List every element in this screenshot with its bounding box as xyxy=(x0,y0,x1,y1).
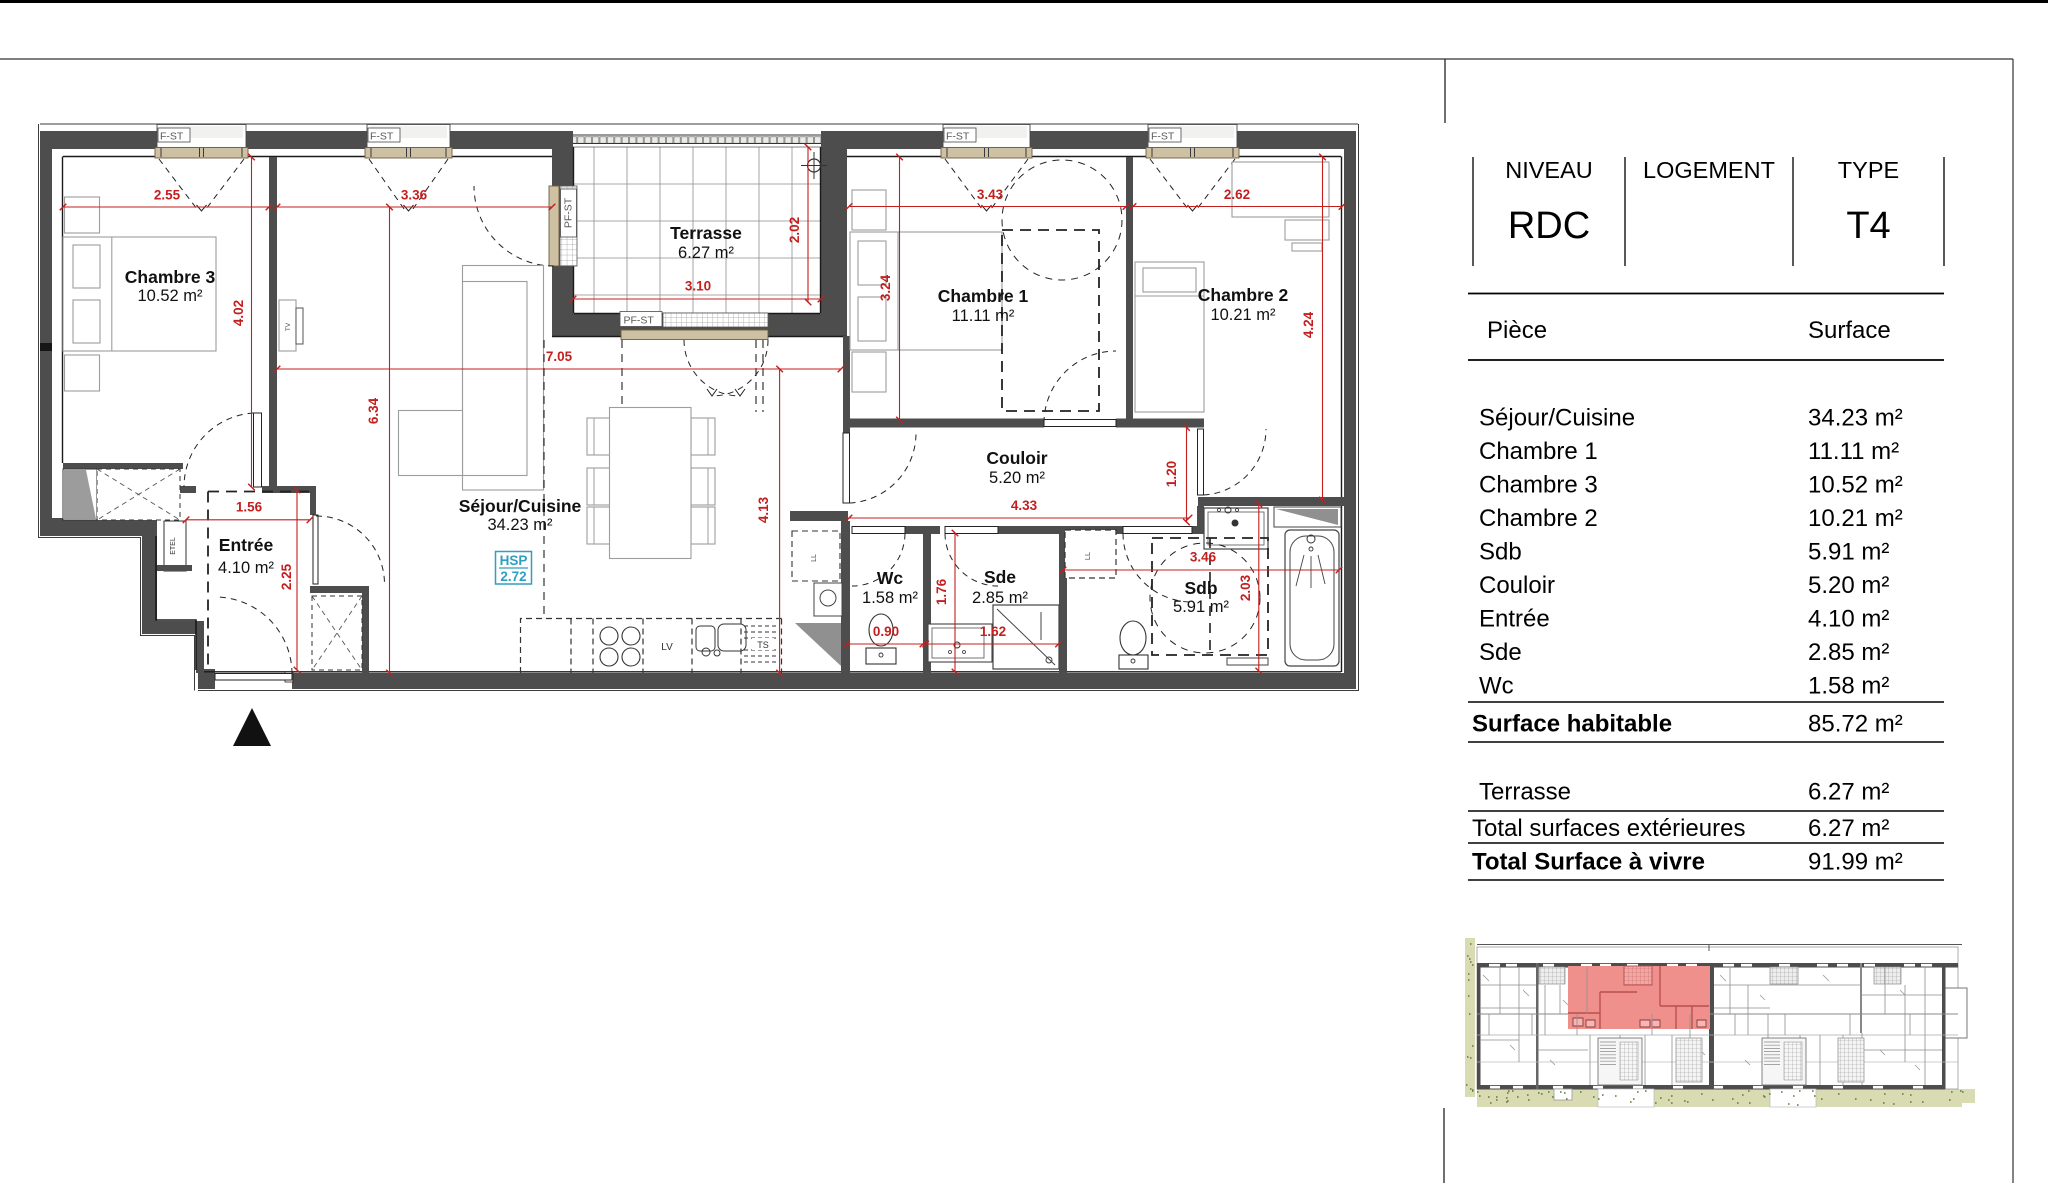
svg-text:10.21 m²: 10.21 m² xyxy=(1808,505,1903,532)
svg-text:Surface habitable: Surface habitable xyxy=(1472,711,1672,738)
svg-text:F-ST: F-ST xyxy=(946,131,970,143)
svg-text:PF-ST: PF-ST xyxy=(563,197,575,228)
svg-text:1.58 m²: 1.58 m² xyxy=(1808,673,1889,700)
svg-text:Sdb: Sdb xyxy=(1479,539,1522,566)
svg-text:Terrasse: Terrasse xyxy=(1479,779,1571,806)
svg-text:1.20: 1.20 xyxy=(1164,461,1179,487)
svg-text:Couloir: Couloir xyxy=(986,448,1047,468)
svg-text:Total surfaces extérieures: Total surfaces extérieures xyxy=(1472,815,1745,842)
svg-text:F-ST: F-ST xyxy=(1151,131,1175,143)
svg-text:3.46: 3.46 xyxy=(1190,550,1217,565)
svg-text:4.10 m²: 4.10 m² xyxy=(218,559,274,577)
svg-text:Chambre 2: Chambre 2 xyxy=(1198,285,1289,305)
svg-text:6.34: 6.34 xyxy=(366,397,381,424)
svg-text:LOGEMENT: LOGEMENT xyxy=(1643,157,1775,183)
svg-text:11.11 m²: 11.11 m² xyxy=(1808,438,1899,465)
svg-text:6.27 m²: 6.27 m² xyxy=(1808,815,1889,842)
svg-text:Sde: Sde xyxy=(1479,639,1522,666)
svg-text:T4: T4 xyxy=(1846,205,1890,247)
svg-text:NIVEAU: NIVEAU xyxy=(1505,157,1593,183)
svg-text:RDC: RDC xyxy=(1508,205,1590,247)
svg-text:F-ST: F-ST xyxy=(370,131,394,143)
svg-text:4.02: 4.02 xyxy=(231,300,246,326)
svg-text:HSP: HSP xyxy=(500,553,528,568)
svg-text:4.13: 4.13 xyxy=(756,496,771,523)
svg-text:2.02: 2.02 xyxy=(787,217,802,243)
svg-text:1.56: 1.56 xyxy=(236,500,263,515)
svg-text:Entrée: Entrée xyxy=(219,535,274,555)
svg-text:Chambre 2: Chambre 2 xyxy=(1479,505,1598,532)
svg-text:7.05: 7.05 xyxy=(546,349,573,364)
svg-text:TV: TV xyxy=(285,322,292,331)
svg-text:3.36: 3.36 xyxy=(401,188,428,203)
svg-text:5.20 m²: 5.20 m² xyxy=(989,469,1045,487)
svg-text:Séjour/Cuisine: Séjour/Cuisine xyxy=(1479,405,1635,432)
svg-text:F-ST: F-ST xyxy=(160,131,184,143)
svg-text:Wc: Wc xyxy=(1479,673,1514,700)
svg-text:2.85 m²: 2.85 m² xyxy=(972,589,1028,607)
svg-text:LL: LL xyxy=(1083,552,1092,560)
svg-text:Total Surface à vivre: Total Surface à vivre xyxy=(1472,849,1705,876)
svg-text:1.62: 1.62 xyxy=(980,624,1006,639)
svg-text:2.25: 2.25 xyxy=(279,563,294,590)
svg-text:91.99 m²: 91.99 m² xyxy=(1808,849,1903,876)
svg-text:Chambre 1: Chambre 1 xyxy=(1479,438,1598,465)
svg-text:3.24: 3.24 xyxy=(878,274,893,301)
svg-text:34.23 m²: 34.23 m² xyxy=(487,516,553,534)
svg-text:Surface: Surface xyxy=(1808,317,1891,344)
svg-text:4.24: 4.24 xyxy=(1301,311,1316,338)
svg-text:0.90: 0.90 xyxy=(873,624,899,639)
svg-text:LL: LL xyxy=(811,554,818,562)
svg-text:10.52 m²: 10.52 m² xyxy=(1808,472,1903,499)
svg-text:2.85 m²: 2.85 m² xyxy=(1808,639,1889,666)
svg-text:1.76: 1.76 xyxy=(934,578,949,605)
svg-text:6.27 m²: 6.27 m² xyxy=(678,244,734,262)
svg-text:Terrasse: Terrasse xyxy=(670,223,742,243)
svg-text:Pièce: Pièce xyxy=(1487,317,1547,344)
svg-text:6.27 m²: 6.27 m² xyxy=(1808,779,1889,806)
svg-text:3.43: 3.43 xyxy=(977,187,1004,202)
svg-text:ETEL: ETEL xyxy=(170,537,177,555)
svg-text:4.33: 4.33 xyxy=(1011,498,1038,513)
svg-text:2.62: 2.62 xyxy=(1224,187,1250,202)
svg-text:2.72: 2.72 xyxy=(500,569,526,584)
svg-text:5.91 m²: 5.91 m² xyxy=(1173,598,1229,616)
svg-text:Couloir: Couloir xyxy=(1479,572,1555,599)
svg-text:34.23 m²: 34.23 m² xyxy=(1808,405,1903,432)
svg-text:Chambre 1: Chambre 1 xyxy=(938,286,1029,306)
svg-text:4.10 m²: 4.10 m² xyxy=(1808,606,1889,633)
svg-text:Sde: Sde xyxy=(984,567,1016,587)
svg-text:85.72 m²: 85.72 m² xyxy=(1808,711,1903,738)
svg-text:TYPE: TYPE xyxy=(1838,157,1899,183)
svg-text:2.03: 2.03 xyxy=(1238,574,1253,601)
svg-text:Sdb: Sdb xyxy=(1184,578,1217,598)
svg-text:TS: TS xyxy=(757,640,769,650)
svg-text:2.55: 2.55 xyxy=(154,188,181,203)
svg-text:Chambre 3: Chambre 3 xyxy=(125,267,216,287)
svg-text:1.58 m²: 1.58 m² xyxy=(862,589,918,607)
svg-text:10.52 m²: 10.52 m² xyxy=(137,287,203,305)
svg-text:Wc: Wc xyxy=(877,568,904,588)
svg-text:PF-ST: PF-ST xyxy=(624,315,655,327)
svg-text:LV: LV xyxy=(661,642,673,653)
svg-text:5.91 m²: 5.91 m² xyxy=(1808,539,1889,566)
svg-text:Chambre 3: Chambre 3 xyxy=(1479,472,1598,499)
svg-text:3.10: 3.10 xyxy=(685,279,711,294)
svg-text:Séjour/Cuisine: Séjour/Cuisine xyxy=(459,496,582,516)
svg-text:5.20 m²: 5.20 m² xyxy=(1808,572,1889,599)
svg-text:Entrée: Entrée xyxy=(1479,606,1550,633)
svg-text:10.21 m²: 10.21 m² xyxy=(1210,306,1276,324)
svg-text:11.11 m²: 11.11 m² xyxy=(952,307,1015,325)
